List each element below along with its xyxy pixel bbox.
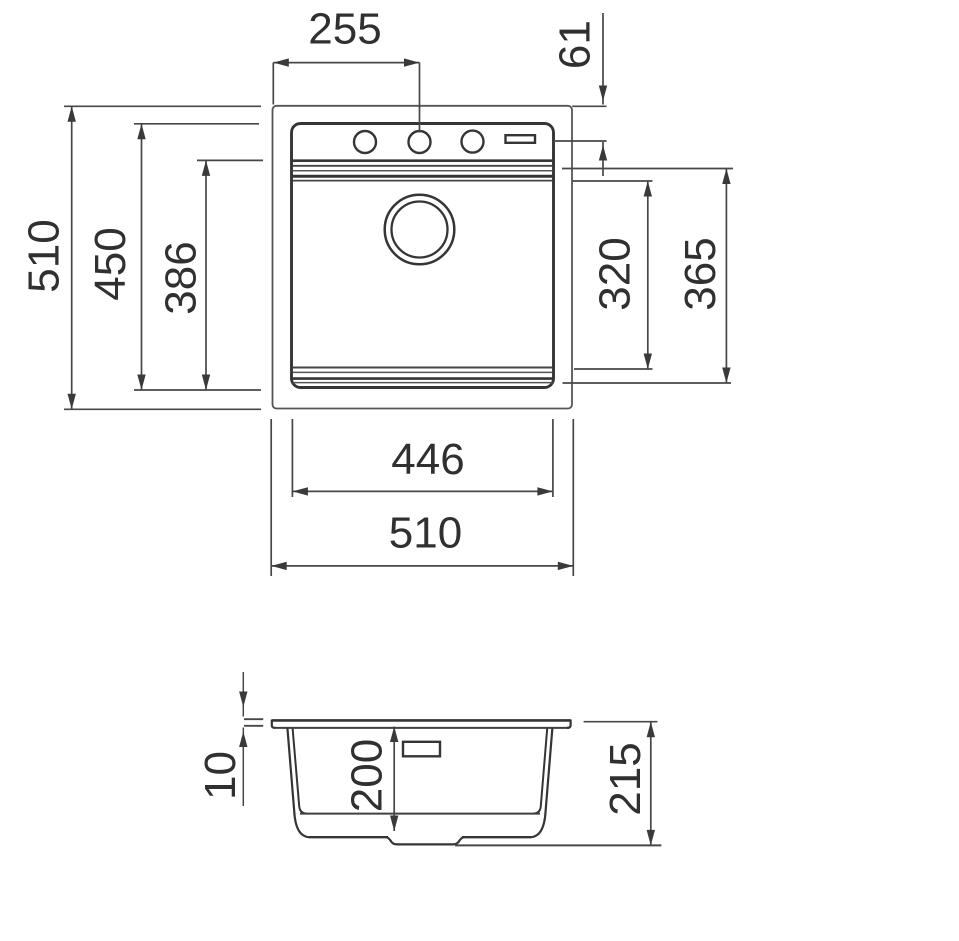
- svg-text:320: 320: [591, 237, 640, 310]
- svg-text:386: 386: [157, 241, 206, 314]
- svg-text:10: 10: [196, 751, 245, 800]
- svg-text:450: 450: [86, 227, 135, 300]
- svg-text:365: 365: [676, 237, 725, 310]
- svg-text:200: 200: [343, 739, 392, 812]
- svg-text:255: 255: [308, 5, 381, 54]
- svg-text:215: 215: [601, 742, 650, 815]
- svg-text:510: 510: [389, 509, 462, 558]
- svg-text:61: 61: [551, 20, 600, 69]
- svg-text:510: 510: [20, 219, 69, 292]
- svg-text:446: 446: [391, 435, 464, 484]
